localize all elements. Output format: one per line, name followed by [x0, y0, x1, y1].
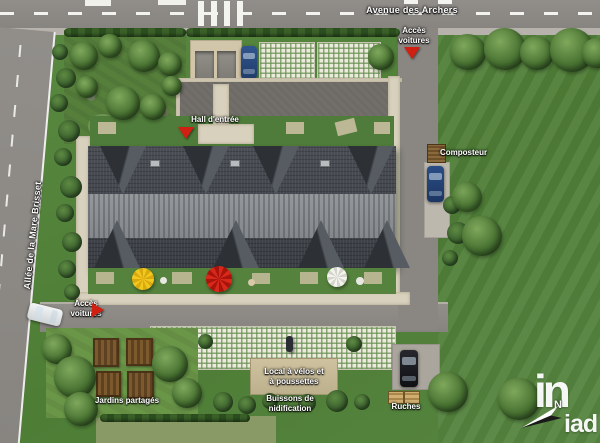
parasol-yellow	[132, 268, 154, 290]
bush	[198, 334, 213, 349]
roof-gable	[183, 146, 229, 194]
access-top-label: Accès voitures	[392, 26, 436, 45]
watermark: in iad N	[520, 372, 600, 442]
parasol-red	[206, 266, 232, 292]
tree	[462, 216, 502, 256]
hedge-row	[100, 414, 250, 422]
tree	[106, 86, 140, 120]
courtyard	[178, 80, 400, 120]
nesting-bushes-label: Buissons de nidification	[258, 394, 322, 413]
garden-bed	[93, 338, 119, 367]
road-marking	[85, 0, 111, 6]
tree	[70, 42, 98, 70]
crosswalk	[198, 1, 244, 26]
hall-label: Hall d'entrée	[184, 115, 246, 125]
hedge-row	[186, 28, 400, 37]
garden-bed	[96, 371, 121, 397]
skylight	[230, 160, 240, 167]
bush	[58, 120, 80, 142]
bush	[238, 396, 256, 414]
tree	[172, 378, 202, 408]
beehives-label: Ruches	[382, 402, 430, 412]
bush	[62, 232, 82, 252]
carport-bay	[217, 51, 236, 81]
garden-bed	[127, 371, 154, 399]
shared-gardens-label: Jardins partagés	[88, 396, 166, 406]
tree	[162, 76, 182, 96]
bush	[56, 68, 76, 88]
tree	[98, 34, 122, 58]
carport-bay	[195, 51, 214, 81]
avenue-centerline	[0, 12, 600, 15]
path	[176, 78, 402, 82]
bike-shed-label: Local à vélos et à poussettes	[264, 367, 324, 386]
bush	[346, 336, 362, 352]
tree	[128, 40, 160, 72]
tree	[450, 34, 486, 70]
roof-gable	[348, 146, 394, 194]
roof-gable	[253, 146, 299, 194]
bush	[326, 390, 348, 412]
tree	[428, 372, 468, 412]
terrace-pad	[98, 122, 116, 134]
car-black	[400, 350, 418, 387]
access-top-arrow-icon	[404, 47, 420, 59]
road-marking	[158, 0, 186, 5]
paver-parking	[259, 42, 315, 80]
skylight	[150, 160, 160, 167]
bike-shed: Local à vélos et à poussettes	[250, 358, 338, 395]
tree	[520, 36, 554, 70]
road-marking	[404, 0, 468, 4]
garden-table	[356, 277, 364, 285]
tree	[368, 44, 394, 70]
bush	[58, 260, 76, 278]
hedge-row	[64, 28, 186, 37]
garden-table	[248, 279, 255, 286]
tree	[452, 182, 482, 212]
car-blue-east	[427, 166, 444, 202]
terrace-pad	[96, 272, 114, 284]
tree	[76, 76, 98, 98]
main-building-roof	[88, 146, 396, 268]
garden-bed	[126, 338, 153, 366]
street-label-avenue: Avenue des Archers	[352, 5, 472, 16]
bush	[56, 204, 74, 222]
access-bottom-arrow-icon	[92, 303, 104, 317]
hall-arrow-icon	[178, 127, 194, 139]
terrace-pad	[374, 122, 390, 134]
site-plan: Local à vélos et à poussettes Avenue des…	[0, 0, 600, 443]
pedestrian	[286, 336, 293, 352]
car-blue	[241, 46, 257, 79]
allee-centerline	[0, 37, 22, 443]
tree	[140, 94, 166, 120]
bush	[54, 148, 72, 166]
terrace-pad	[364, 272, 382, 284]
brand-name: iad	[564, 410, 597, 439]
roof-light-band	[88, 194, 396, 238]
bush	[442, 250, 458, 266]
parasol-white	[327, 267, 347, 287]
composter-label: Composteur	[440, 148, 500, 158]
bush	[50, 94, 68, 112]
tree	[158, 52, 182, 76]
roof-gable	[100, 146, 146, 194]
terrace-pad	[300, 272, 318, 284]
bush	[52, 44, 68, 60]
bush	[213, 392, 233, 412]
bush	[354, 394, 370, 410]
bush	[60, 176, 82, 198]
skylight	[320, 160, 330, 167]
garden-table	[160, 277, 167, 284]
entrance-court	[198, 124, 254, 144]
tree	[152, 346, 188, 382]
terrace-pad	[286, 122, 304, 134]
bush	[64, 284, 80, 300]
terrace-pad	[172, 272, 192, 284]
compass-north-label: N	[554, 399, 562, 411]
